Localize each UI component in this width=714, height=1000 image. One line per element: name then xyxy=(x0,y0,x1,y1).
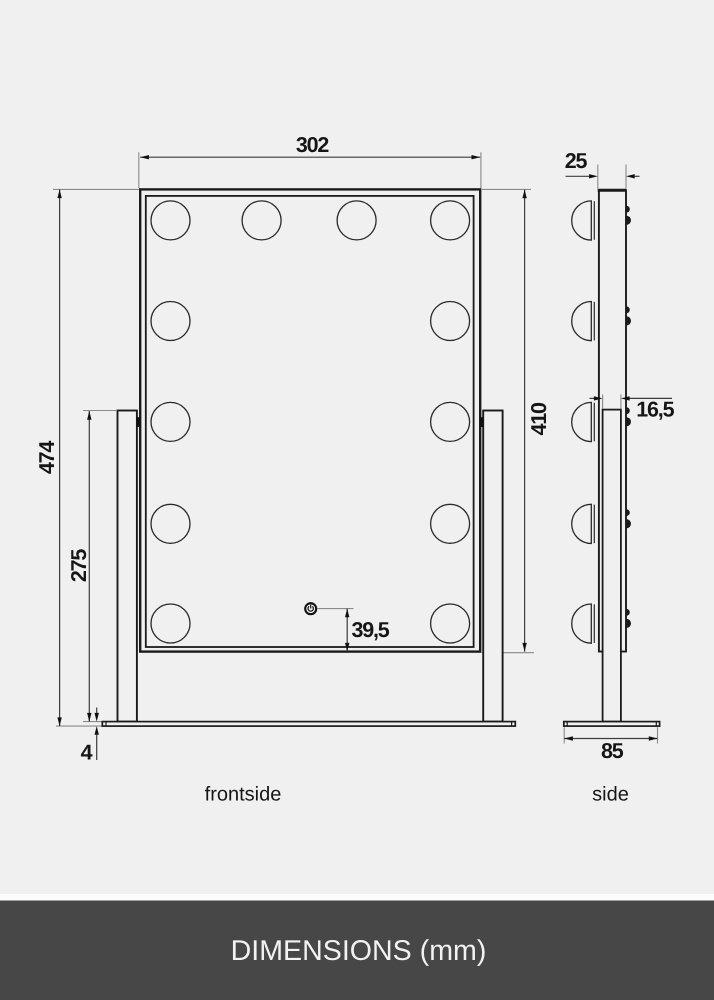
svg-text:85: 85 xyxy=(601,739,624,763)
svg-text:side: side xyxy=(592,784,629,806)
svg-text:302: 302 xyxy=(296,133,330,157)
svg-text:25: 25 xyxy=(565,149,588,173)
svg-text:frontside: frontside xyxy=(205,784,282,806)
svg-text:39,5: 39,5 xyxy=(352,618,390,642)
svg-text:410: 410 xyxy=(527,402,551,436)
svg-text:474: 474 xyxy=(35,441,59,475)
svg-text:4: 4 xyxy=(81,740,93,764)
svg-text:275: 275 xyxy=(67,549,91,583)
svg-text:16,5: 16,5 xyxy=(636,398,674,422)
svg-text:DIMENSIONS (mm): DIMENSIONS (mm) xyxy=(231,935,487,967)
